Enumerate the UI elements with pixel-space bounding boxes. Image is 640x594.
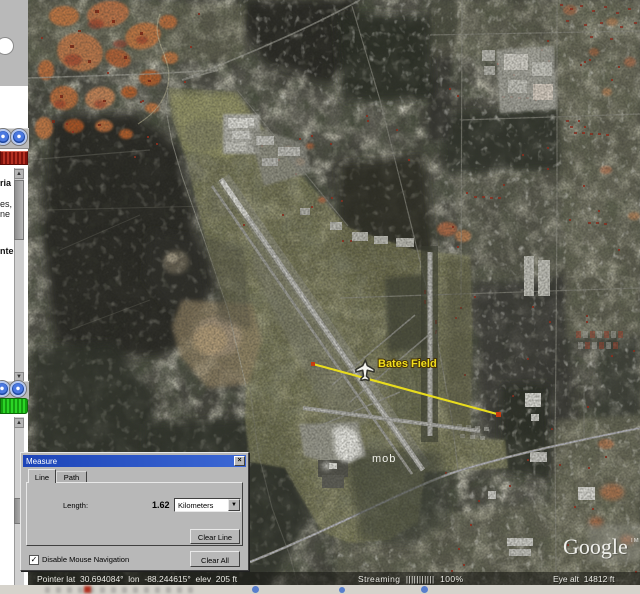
svg-text:Eye alt 14812 ft: Eye alt 14812 ft — [553, 574, 615, 584]
svg-text:Pointer lat 30.694084° lon: Pointer lat 30.694084° lon -88.244615° e… — [37, 574, 238, 584]
svg-text:Bates Field: Bates Field — [378, 358, 437, 370]
svg-text:Google: Google — [563, 534, 628, 559]
svg-text:Streaming ||||||||||| 100%: Streaming ||||||||||| 100% — [358, 574, 463, 584]
svg-text:TM: TM — [630, 538, 639, 544]
svg-text:mob: mob — [372, 453, 396, 465]
